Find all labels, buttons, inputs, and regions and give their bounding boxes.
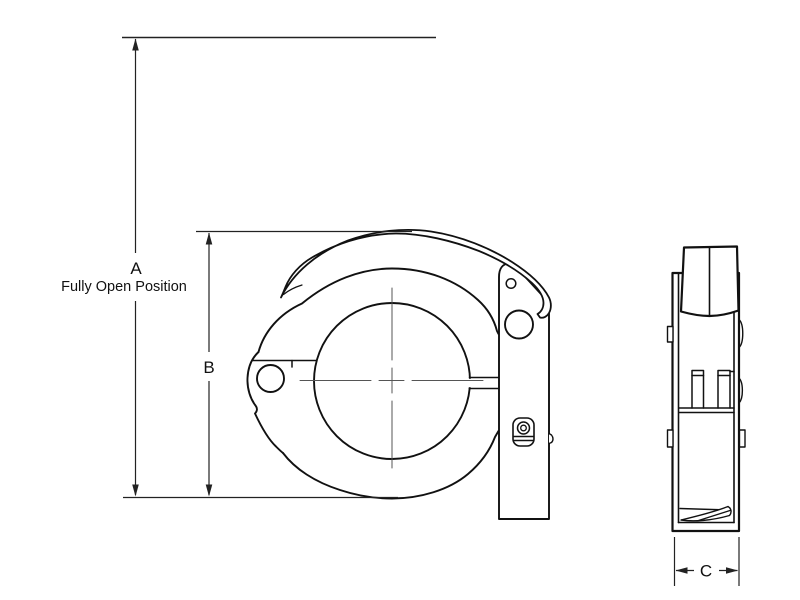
dim-b-label: B [203, 358, 214, 377]
clamp-technical-drawing: A Fully Open Position B C [0, 0, 800, 600]
hinge-pin-circle [257, 365, 284, 392]
wing-nut [513, 418, 534, 446]
dim-a-label: A [130, 259, 142, 278]
dim-a-arrow-down [132, 485, 139, 497]
side-tab-lower-left [668, 430, 674, 447]
outer-band-upper-arc [259, 269, 499, 353]
dim-b-arrow-up [206, 233, 213, 245]
dimension-a: A Fully Open Position [61, 38, 436, 497]
clamp-side-view [668, 247, 746, 532]
latch-bar [499, 263, 549, 520]
side-tab-lower-right [740, 430, 746, 447]
latch-bar-side-tab [549, 434, 553, 444]
latch-pivot-hole [506, 279, 516, 289]
latch-bolt-hole [505, 311, 533, 339]
wing-nut-ring-inner [521, 425, 527, 431]
center-crosshair [300, 288, 483, 468]
dim-c-label: C [700, 562, 712, 581]
outer-band-lower-arc [283, 431, 499, 499]
dim-c-arrow-right [726, 567, 738, 574]
clamp-front-view [247, 230, 553, 519]
dim-a-note: Fully Open Position [61, 279, 187, 295]
dimension-c: C [675, 537, 740, 586]
side-tab-upper-left [668, 327, 674, 343]
dim-a-arrow-up [132, 39, 139, 51]
dim-c-arrow-left [676, 567, 688, 574]
drawing-canvas: A Fully Open Position B C [0, 0, 800, 600]
dim-b-arrow-down [206, 485, 213, 497]
